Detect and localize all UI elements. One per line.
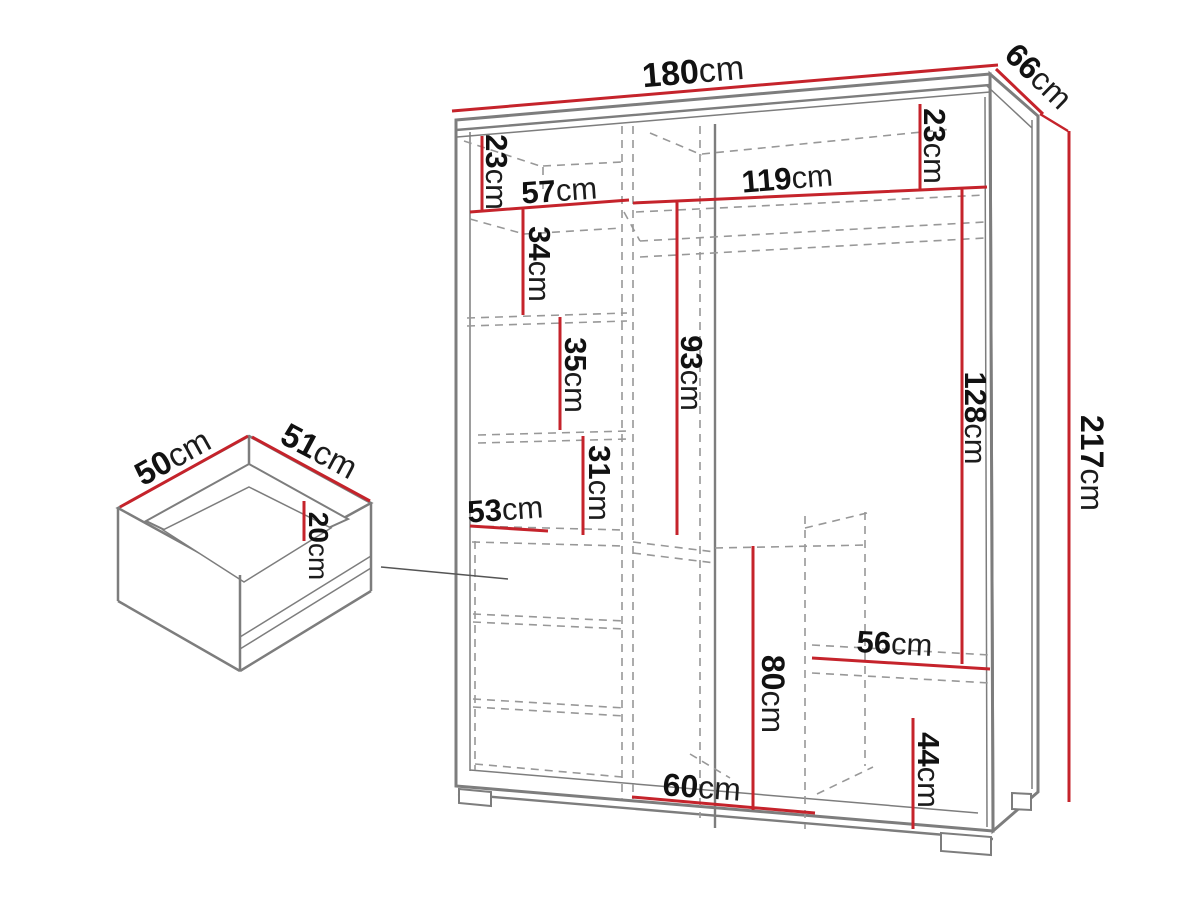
dim-label-middle-height: 93cm bbox=[674, 335, 709, 411]
dim-value: 20 bbox=[303, 512, 334, 543]
dim-value: 53 bbox=[466, 492, 503, 529]
dim-unit: cm bbox=[790, 158, 834, 196]
dim-unit: cm bbox=[479, 169, 514, 210]
dim-unit: cm bbox=[755, 690, 791, 733]
diagram-page: 180cm 66cm 217cm 23cm 57cm 119cm 23cm 34… bbox=[0, 0, 1200, 900]
dim-value: 31 bbox=[582, 445, 617, 479]
dim-label-bottom-opening-width: 60cm bbox=[661, 766, 742, 807]
dim-label-drawer-height: 20cm bbox=[303, 512, 334, 580]
dim-unit: cm bbox=[558, 372, 593, 413]
dim-label-right-section-width: 119cm bbox=[740, 158, 834, 200]
dim-label-left-section-width: 57cm bbox=[520, 170, 598, 210]
dim-label-height: 217cm bbox=[1074, 415, 1110, 511]
dim-unit: cm bbox=[917, 143, 952, 184]
wardrobe-dimension-diagram: 180cm 66cm 217cm 23cm 57cm 119cm 23cm 34… bbox=[0, 0, 1200, 900]
dim-value: 56 bbox=[856, 624, 892, 661]
wardrobe-foot-right-back bbox=[1012, 793, 1031, 810]
dim-value: 119 bbox=[740, 161, 793, 200]
dim-value: 93 bbox=[674, 335, 709, 369]
dim-value: 128 bbox=[958, 371, 993, 423]
dim-unit: cm bbox=[582, 480, 617, 521]
dim-unit: cm bbox=[958, 423, 993, 464]
dim-label-top-shelf-left: 23cm bbox=[479, 134, 514, 210]
dim-label-left-gap-2: 35cm bbox=[558, 337, 593, 413]
dim-unit: cm bbox=[697, 49, 745, 91]
dim-value: 60 bbox=[661, 766, 699, 804]
dim-label-top-shelf-right: 23cm bbox=[917, 108, 952, 184]
dim-label-right-shelf-width: 56cm bbox=[856, 624, 934, 663]
dim-value: 44 bbox=[911, 732, 946, 767]
dim-unit: cm bbox=[522, 261, 557, 302]
dim-unit: cm bbox=[890, 626, 933, 663]
dim-label-right-opening-height: 128cm bbox=[958, 371, 993, 464]
wardrobe-foot-left bbox=[459, 789, 491, 806]
dim-value: 23 bbox=[917, 108, 952, 142]
dim-unit: cm bbox=[1074, 468, 1110, 511]
dim-value: 23 bbox=[479, 134, 514, 168]
dim-unit: cm bbox=[911, 767, 946, 808]
wardrobe-side-face bbox=[990, 74, 1038, 831]
dim-label-lower-right-height: 44cm bbox=[911, 732, 946, 808]
dim-label-left-gap-1: 34cm bbox=[522, 226, 557, 302]
dim-unit: cm bbox=[555, 170, 599, 208]
dim-value: 35 bbox=[558, 337, 593, 371]
dim-unit: cm bbox=[697, 769, 742, 808]
dim-unit: cm bbox=[501, 489, 545, 527]
dim-value: 34 bbox=[522, 226, 557, 261]
dim-value: 180 bbox=[641, 53, 701, 96]
dim-value: 80 bbox=[755, 655, 791, 691]
depth-to-height-connector bbox=[1040, 114, 1068, 131]
wardrobe-foot-right-front bbox=[941, 833, 991, 855]
dim-value: 217 bbox=[1074, 415, 1110, 468]
dim-label-left-gap-3: 31cm bbox=[582, 445, 617, 521]
dim-unit: cm bbox=[674, 370, 709, 411]
dim-value: 57 bbox=[520, 173, 557, 210]
dim-unit: cm bbox=[303, 543, 334, 580]
dim-label-lower-middle-height: 80cm bbox=[755, 655, 791, 733]
dim-label-drawer-section-width: 53cm bbox=[466, 489, 544, 529]
